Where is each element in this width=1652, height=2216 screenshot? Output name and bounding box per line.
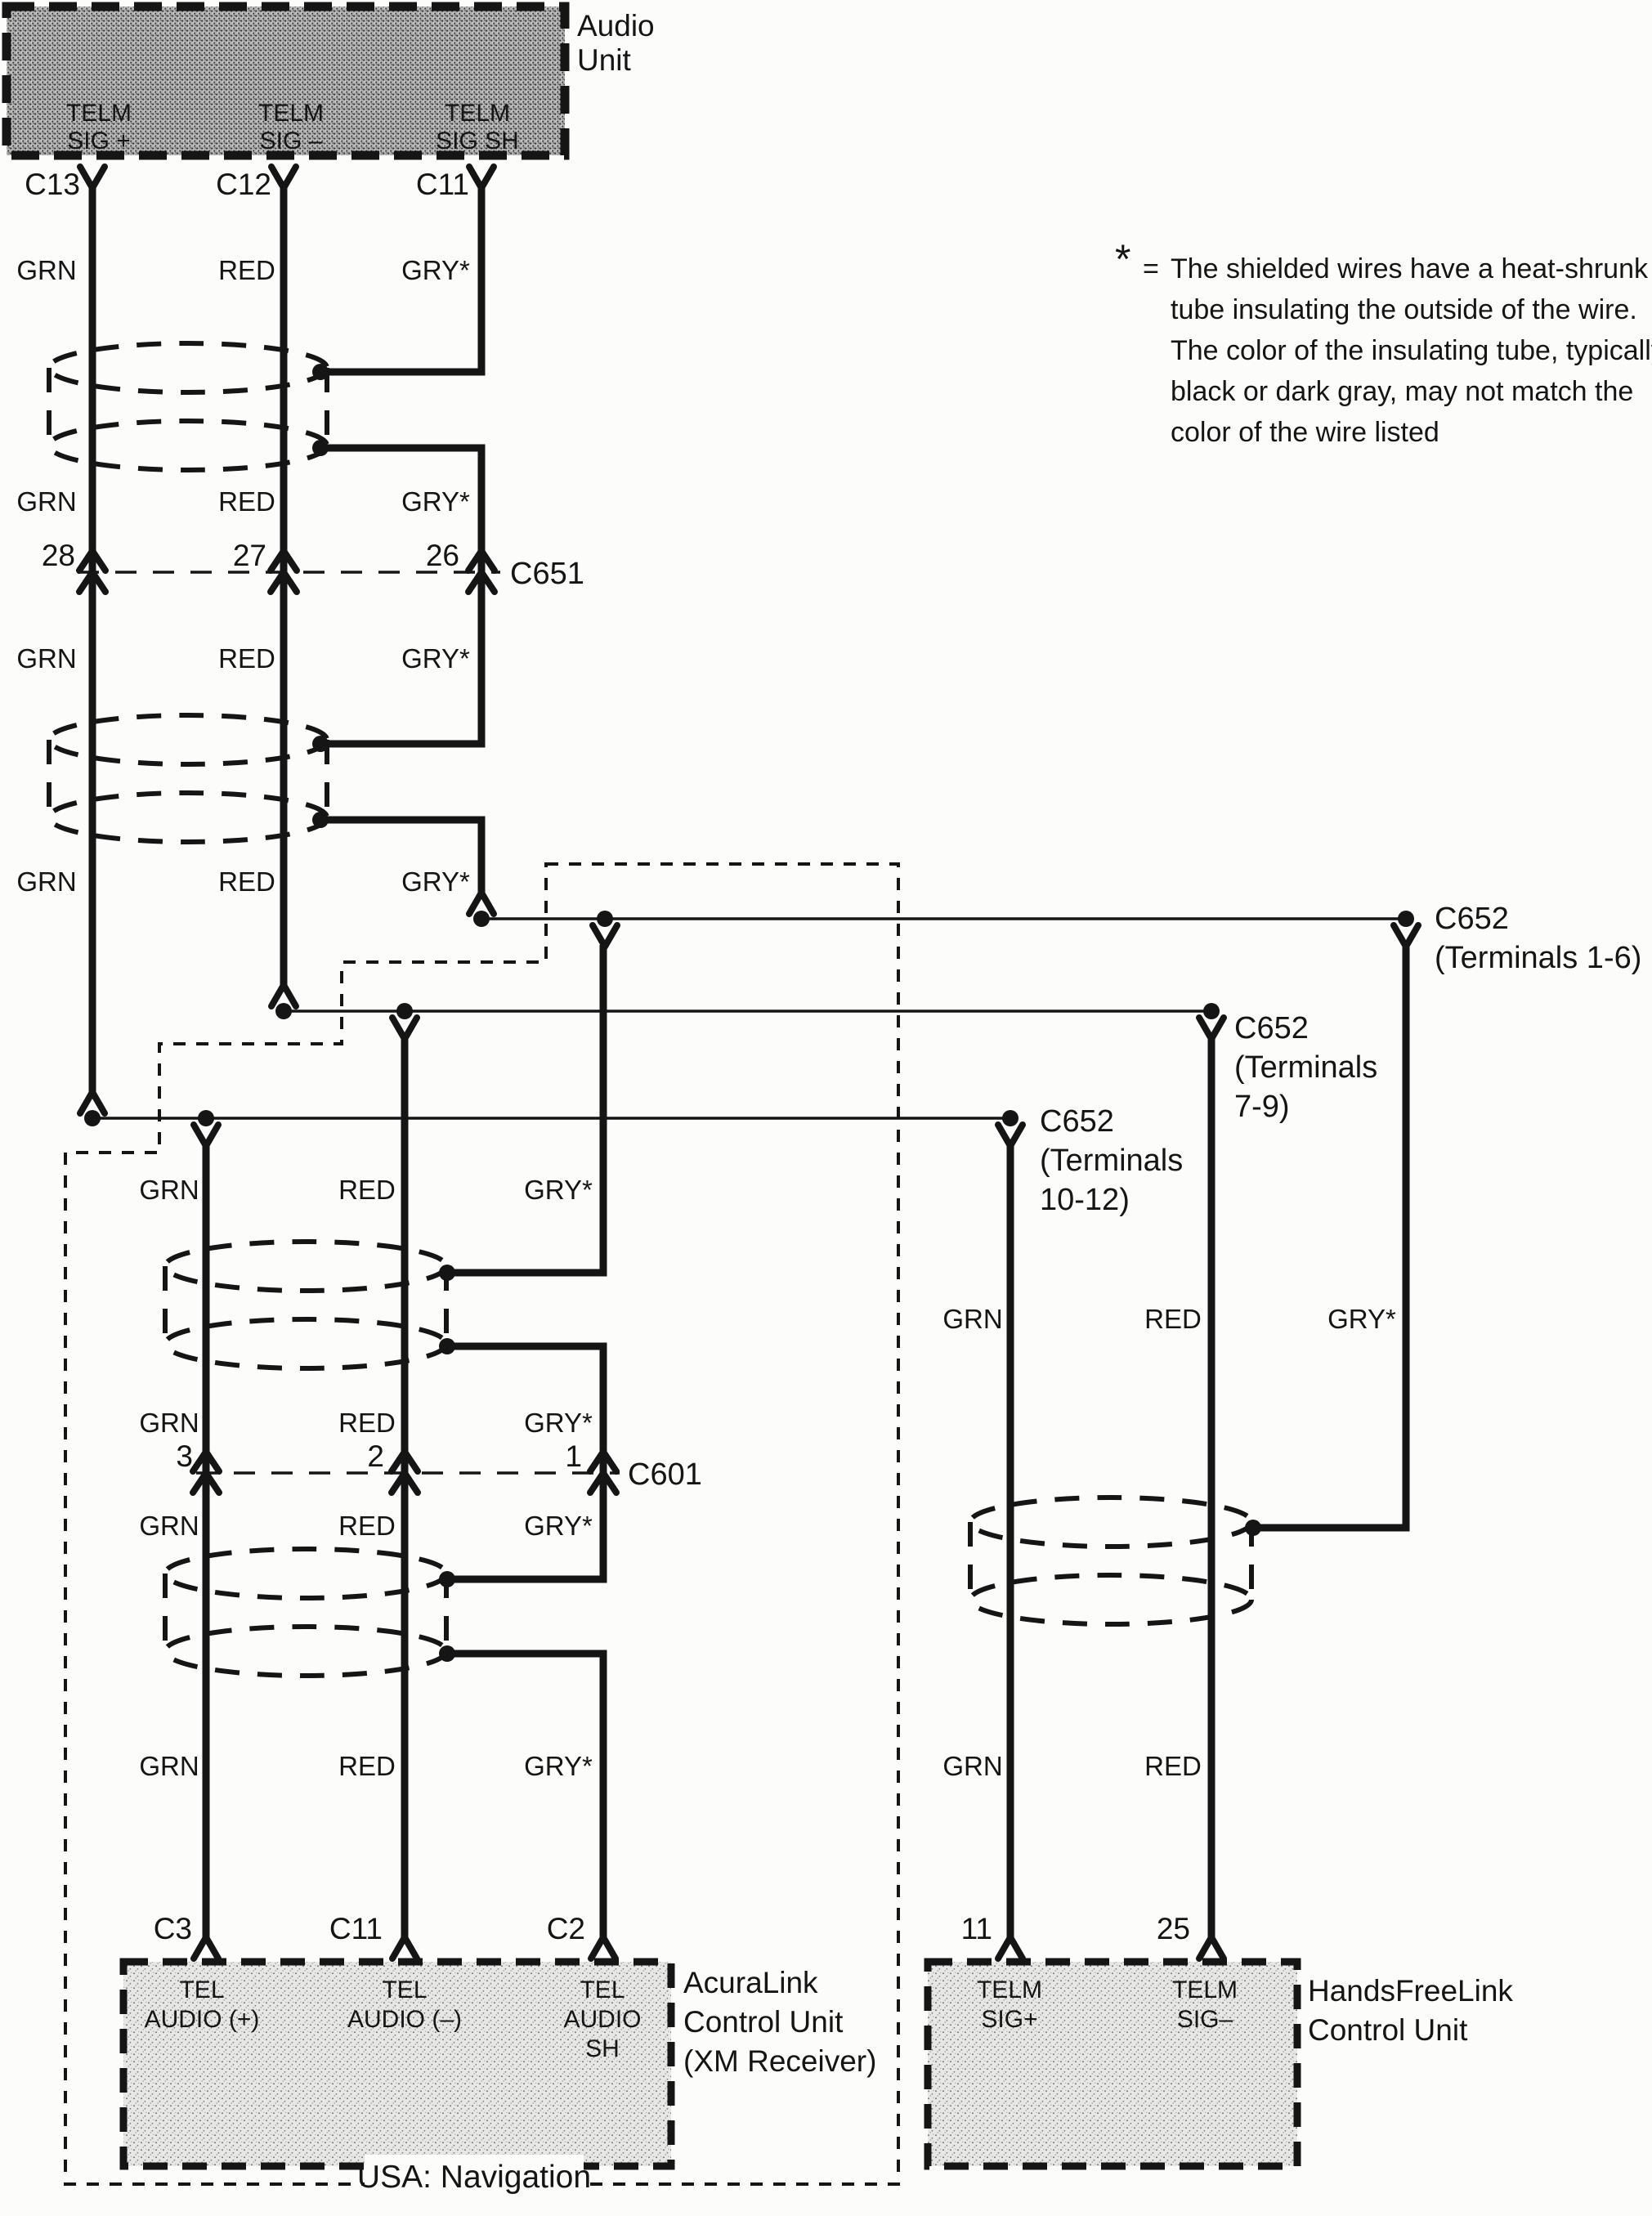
note-equals: = bbox=[1143, 253, 1159, 284]
wire-label-gry: GRY* bbox=[524, 1175, 593, 1205]
c652-7-9-label-line3: 7-9) bbox=[1234, 1090, 1290, 1124]
usa-navigation-label: USA: Navigation bbox=[357, 2160, 591, 2195]
c601-pin-1: 1 bbox=[565, 1439, 582, 1473]
note-line4: black or dark gray, may not match the bbox=[1171, 376, 1633, 407]
wire-label-gry: GRY* bbox=[401, 255, 470, 285]
handsfreelink-terminal-telm-sig-minus-line2: SIG– bbox=[1177, 2006, 1233, 2033]
c651-pin-28: 28 bbox=[42, 539, 75, 572]
audio-pin-c11: C11 bbox=[416, 168, 469, 201]
c652-1-6-label-line1: C652 bbox=[1435, 902, 1509, 936]
acuralink-title-line3: (XM Receiver) bbox=[683, 2044, 876, 2078]
c601-label: C601 bbox=[628, 1457, 702, 1492]
wire-label-red: RED bbox=[1144, 1751, 1202, 1781]
audio-terminal-telm-sig-plus-line1: TELM bbox=[66, 100, 132, 127]
acuralink-terminal-tel-audio-sh-line1: TEL bbox=[580, 1976, 625, 2003]
wire-label-gry: GRY* bbox=[524, 1511, 593, 1541]
acuralink-terminal-tel-audio-minus-line1: TEL bbox=[382, 1976, 427, 2003]
wire-label-gry: GRY* bbox=[524, 1751, 593, 1781]
note-line1: The shielded wires have a heat-shrunk bbox=[1171, 253, 1649, 284]
acuralink-pin-c11: C11 bbox=[329, 1912, 383, 1945]
note-line5: color of the wire listed bbox=[1171, 417, 1439, 448]
audio-terminal-telm-sig-plus-line2: SIG + bbox=[67, 128, 131, 154]
acuralink-pin-c3: C3 bbox=[154, 1912, 192, 1945]
audio-terminal-telm-sig-sh-line1: TELM bbox=[445, 100, 510, 127]
c651-pin-27: 27 bbox=[233, 539, 266, 572]
note-line2: tube insulating the outside of the wire. bbox=[1171, 294, 1637, 325]
wire-label-red: RED bbox=[338, 1175, 396, 1205]
wire-label-red: RED bbox=[338, 1511, 396, 1541]
c651-pin-26: 26 bbox=[426, 539, 459, 572]
acuralink-terminal-tel-audio-sh-line2: AUDIO bbox=[563, 2006, 641, 2033]
c652-1-6-label-line2: (Terminals 1-6) bbox=[1435, 941, 1641, 975]
acuralink-terminal-tel-audio-plus-line2: AUDIO (+) bbox=[145, 2006, 260, 2033]
wire-label-grn: GRN bbox=[16, 255, 76, 285]
wiring-diagram: Audio Unit TELM SIG + TELM SIG – TELM SI… bbox=[0, 0, 1652, 2216]
audio-terminal-telm-sig-sh-line2: SIG SH bbox=[436, 128, 519, 154]
c601-pin-2: 2 bbox=[367, 1439, 384, 1473]
handsfreelink-pin-11: 11 bbox=[961, 1912, 992, 1945]
acuralink-title-line2: Control Unit bbox=[683, 2005, 844, 2039]
audio-unit-title-line2: Unit bbox=[577, 43, 632, 77]
wire-label-grn: GRN bbox=[16, 866, 76, 897]
wire-label-gry: GRY* bbox=[524, 1408, 593, 1438]
handsfreelink-title-line2: Control Unit bbox=[1308, 2013, 1468, 2047]
note-line3: The color of the insulating tube, typica… bbox=[1171, 335, 1652, 366]
handsfreelink-title-line1: HandsFreeLink bbox=[1308, 1974, 1513, 2008]
acuralink-terminal-tel-audio-sh-line3: SH bbox=[585, 2035, 620, 2062]
wire-label-grn: GRN bbox=[139, 1175, 199, 1205]
wire-label-red: RED bbox=[338, 1751, 396, 1781]
wire-label-gry: GRY* bbox=[401, 486, 470, 517]
c652-10-12-label-line1: C652 bbox=[1040, 1104, 1114, 1139]
wire-label-gry: GRY* bbox=[1327, 1304, 1396, 1334]
handsfreelink-terminal-telm-sig-minus-line1: TELM bbox=[1172, 1976, 1238, 2003]
audio-pin-c13: C13 bbox=[25, 168, 80, 201]
c652-10-12-label-line2: (Terminals bbox=[1040, 1144, 1183, 1178]
wire-label-grn: GRN bbox=[139, 1408, 199, 1438]
c652-7-9-label-line1: C652 bbox=[1234, 1011, 1309, 1045]
handsfreelink-terminal-telm-sig-plus-line2: SIG+ bbox=[981, 2006, 1037, 2033]
acuralink-terminal-tel-audio-plus-line1: TEL bbox=[179, 1976, 224, 2003]
c652-7-9-label-line2: (Terminals bbox=[1234, 1050, 1377, 1085]
wire-label-grn: GRN bbox=[942, 1304, 1002, 1334]
wire-label-grn: GRN bbox=[139, 1751, 199, 1781]
wire-label-red: RED bbox=[218, 255, 275, 285]
wire-label-red: RED bbox=[218, 866, 275, 897]
audio-terminal-telm-sig-minus-line1: TELM bbox=[258, 100, 324, 127]
acuralink-pin-c2: C2 bbox=[547, 1912, 585, 1945]
note-asterisk: * bbox=[1115, 236, 1130, 282]
audio-terminal-telm-sig-minus-line2: SIG – bbox=[260, 128, 323, 154]
wire-label-red: RED bbox=[218, 643, 275, 674]
wire-label-grn: GRN bbox=[16, 486, 76, 517]
wire-label-red: RED bbox=[1144, 1304, 1202, 1334]
acuralink-title-line1: AcuraLink bbox=[683, 1966, 818, 1999]
wire-label-grn: GRN bbox=[16, 643, 76, 674]
acuralink-terminal-tel-audio-minus-line2: AUDIO (–) bbox=[347, 2006, 462, 2033]
audio-pin-c12: C12 bbox=[216, 168, 271, 201]
c652-10-12-label-line3: 10-12) bbox=[1040, 1183, 1130, 1217]
wire-label-red: RED bbox=[338, 1408, 396, 1438]
wire-label-gry: GRY* bbox=[401, 866, 470, 897]
audio-unit-title-line1: Audio bbox=[577, 9, 655, 43]
c651-label: C651 bbox=[510, 557, 584, 591]
wiring-diagram-page: Audio Unit TELM SIG + TELM SIG – TELM SI… bbox=[0, 0, 1652, 2216]
handsfreelink-pin-25: 25 bbox=[1157, 1912, 1190, 1945]
handsfreelink-terminal-telm-sig-plus-line1: TELM bbox=[977, 1976, 1042, 2003]
wire-label-red: RED bbox=[218, 486, 275, 517]
c601-pin-3: 3 bbox=[176, 1439, 193, 1473]
wire-label-grn: GRN bbox=[942, 1751, 1002, 1781]
wire-label-gry: GRY* bbox=[401, 643, 470, 674]
wire-label-grn: GRN bbox=[139, 1511, 199, 1541]
